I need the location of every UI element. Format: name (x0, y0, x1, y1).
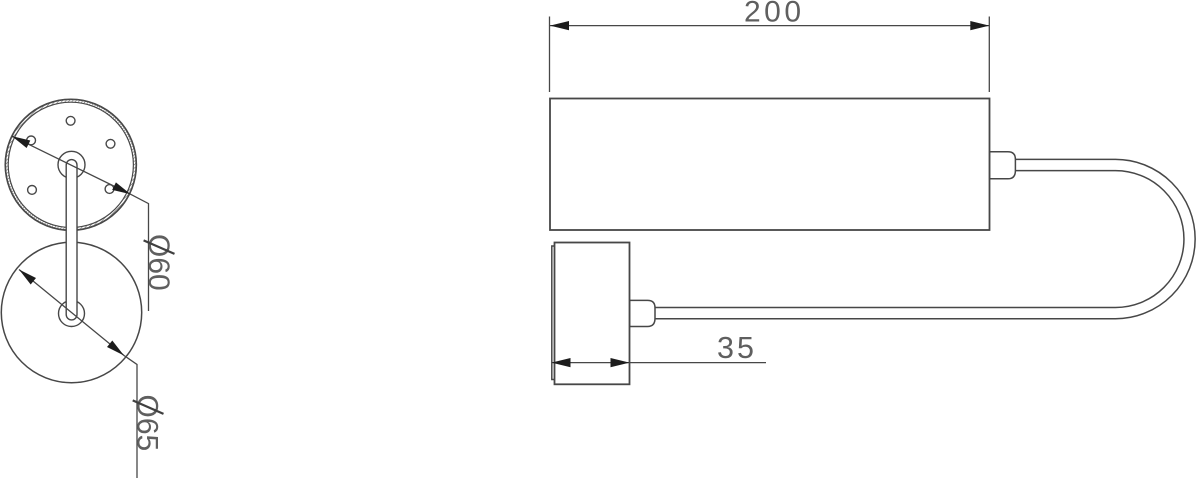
svg-text:O65: O65 (131, 395, 164, 452)
svg-text:200: 200 (744, 0, 805, 29)
svg-text:35: 35 (717, 331, 757, 365)
